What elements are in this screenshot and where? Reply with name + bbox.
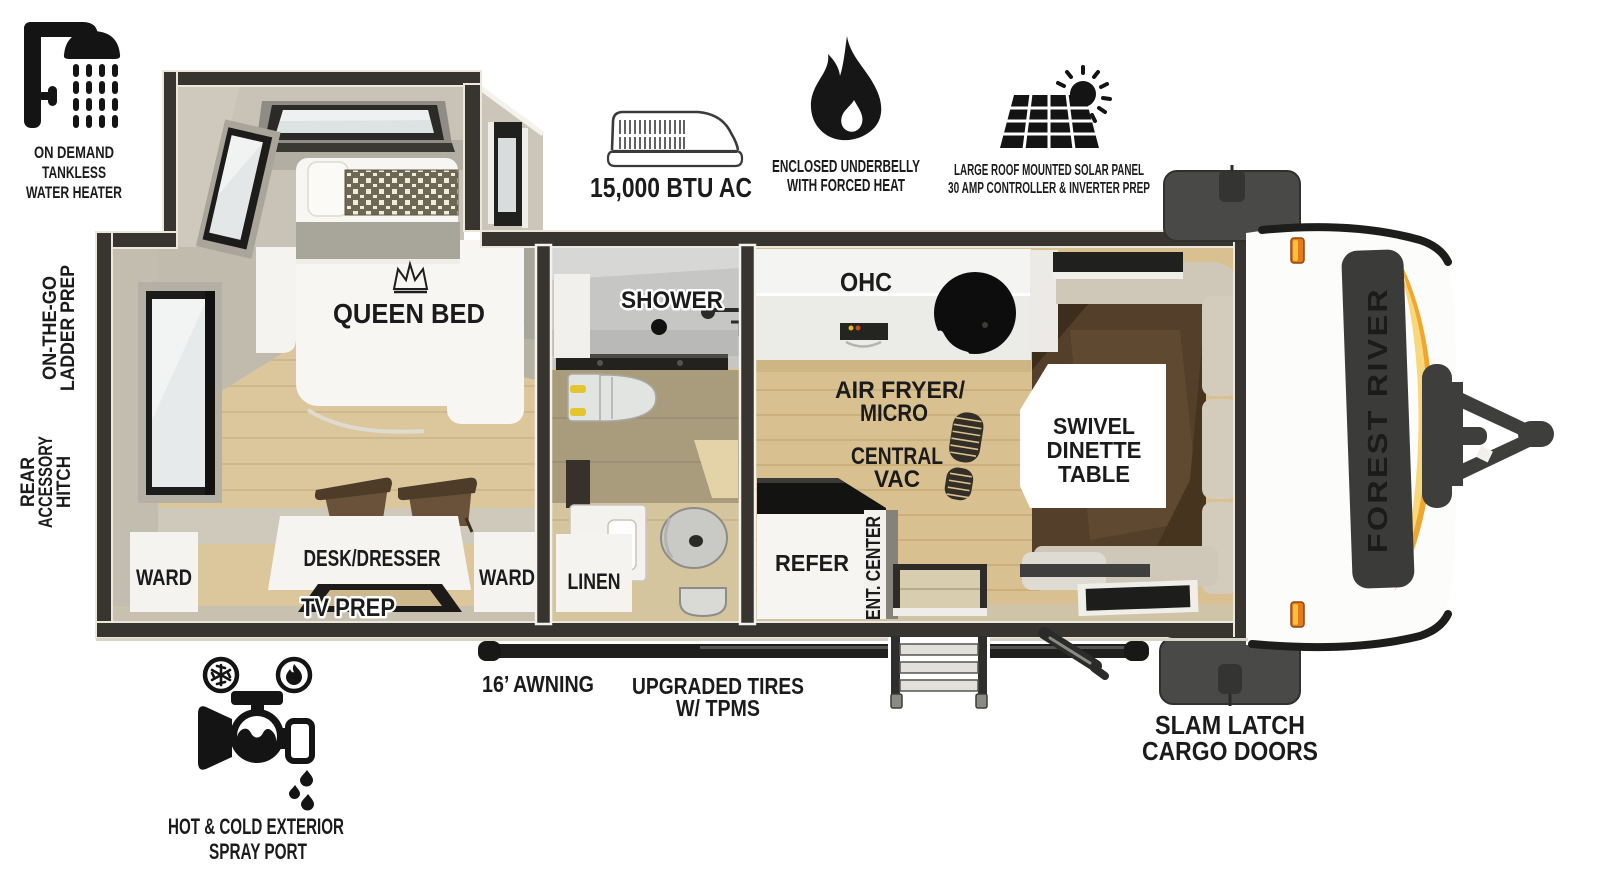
svg-text:SPRAY PORT: SPRAY PORT: [209, 839, 307, 864]
svg-text:LINEN: LINEN: [568, 569, 621, 594]
svg-text:16’ AWNING: 16’ AWNING: [482, 671, 594, 697]
svg-text:W/ TPMS: W/ TPMS: [676, 695, 760, 721]
svg-text:OHC: OHC: [840, 267, 892, 297]
svg-text:WITH FORCED HEAT: WITH FORCED HEAT: [787, 175, 905, 195]
svg-text:30 AMP CONTROLLER & INVERTER P: 30 AMP CONTROLLER & INVERTER PREP: [948, 180, 1150, 197]
svg-text:WARD: WARD: [479, 565, 535, 590]
svg-text:ON-THE-GOLADDER PREP: ON-THE-GOLADDER PREP: [40, 265, 79, 391]
svg-text:SHOWER: SHOWER: [621, 287, 723, 314]
svg-text:ON DEMAND: ON DEMAND: [34, 143, 114, 162]
svg-text:15,000 BTU AC: 15,000 BTU AC: [590, 172, 752, 203]
svg-text:ENCLOSED UNDERBELLY: ENCLOSED UNDERBELLY: [772, 156, 920, 176]
svg-text:VAC: VAC: [874, 466, 920, 493]
svg-text:WATER HEATER: WATER HEATER: [26, 183, 122, 202]
svg-text:ENT. CENTER: ENT. CENTER: [863, 516, 885, 620]
svg-text:WARD: WARD: [136, 565, 192, 590]
svg-text:SWIVEL: SWIVEL: [1053, 413, 1135, 439]
svg-text:QUEEN BED: QUEEN BED: [333, 298, 485, 329]
svg-text:CARGO DOORS: CARGO DOORS: [1142, 736, 1318, 766]
svg-text:TV PREP: TV PREP: [301, 594, 395, 622]
svg-text:MICRO: MICRO: [860, 400, 928, 427]
svg-text:TANKLESS: TANKLESS: [42, 163, 106, 182]
svg-text:DESK/DRESSER: DESK/DRESSER: [304, 545, 441, 571]
svg-text:TABLE: TABLE: [1058, 461, 1130, 487]
svg-text:FOREST RIVER: FOREST RIVER: [1362, 287, 1393, 553]
svg-text:LARGE ROOF MOUNTED SOLAR PANEL: LARGE ROOF MOUNTED SOLAR PANEL: [954, 162, 1144, 179]
svg-text:HOT & COLD EXTERIOR: HOT & COLD EXTERIOR: [168, 814, 344, 839]
svg-text:DINETTE: DINETTE: [1047, 437, 1142, 463]
svg-text:REFER: REFER: [775, 550, 849, 576]
